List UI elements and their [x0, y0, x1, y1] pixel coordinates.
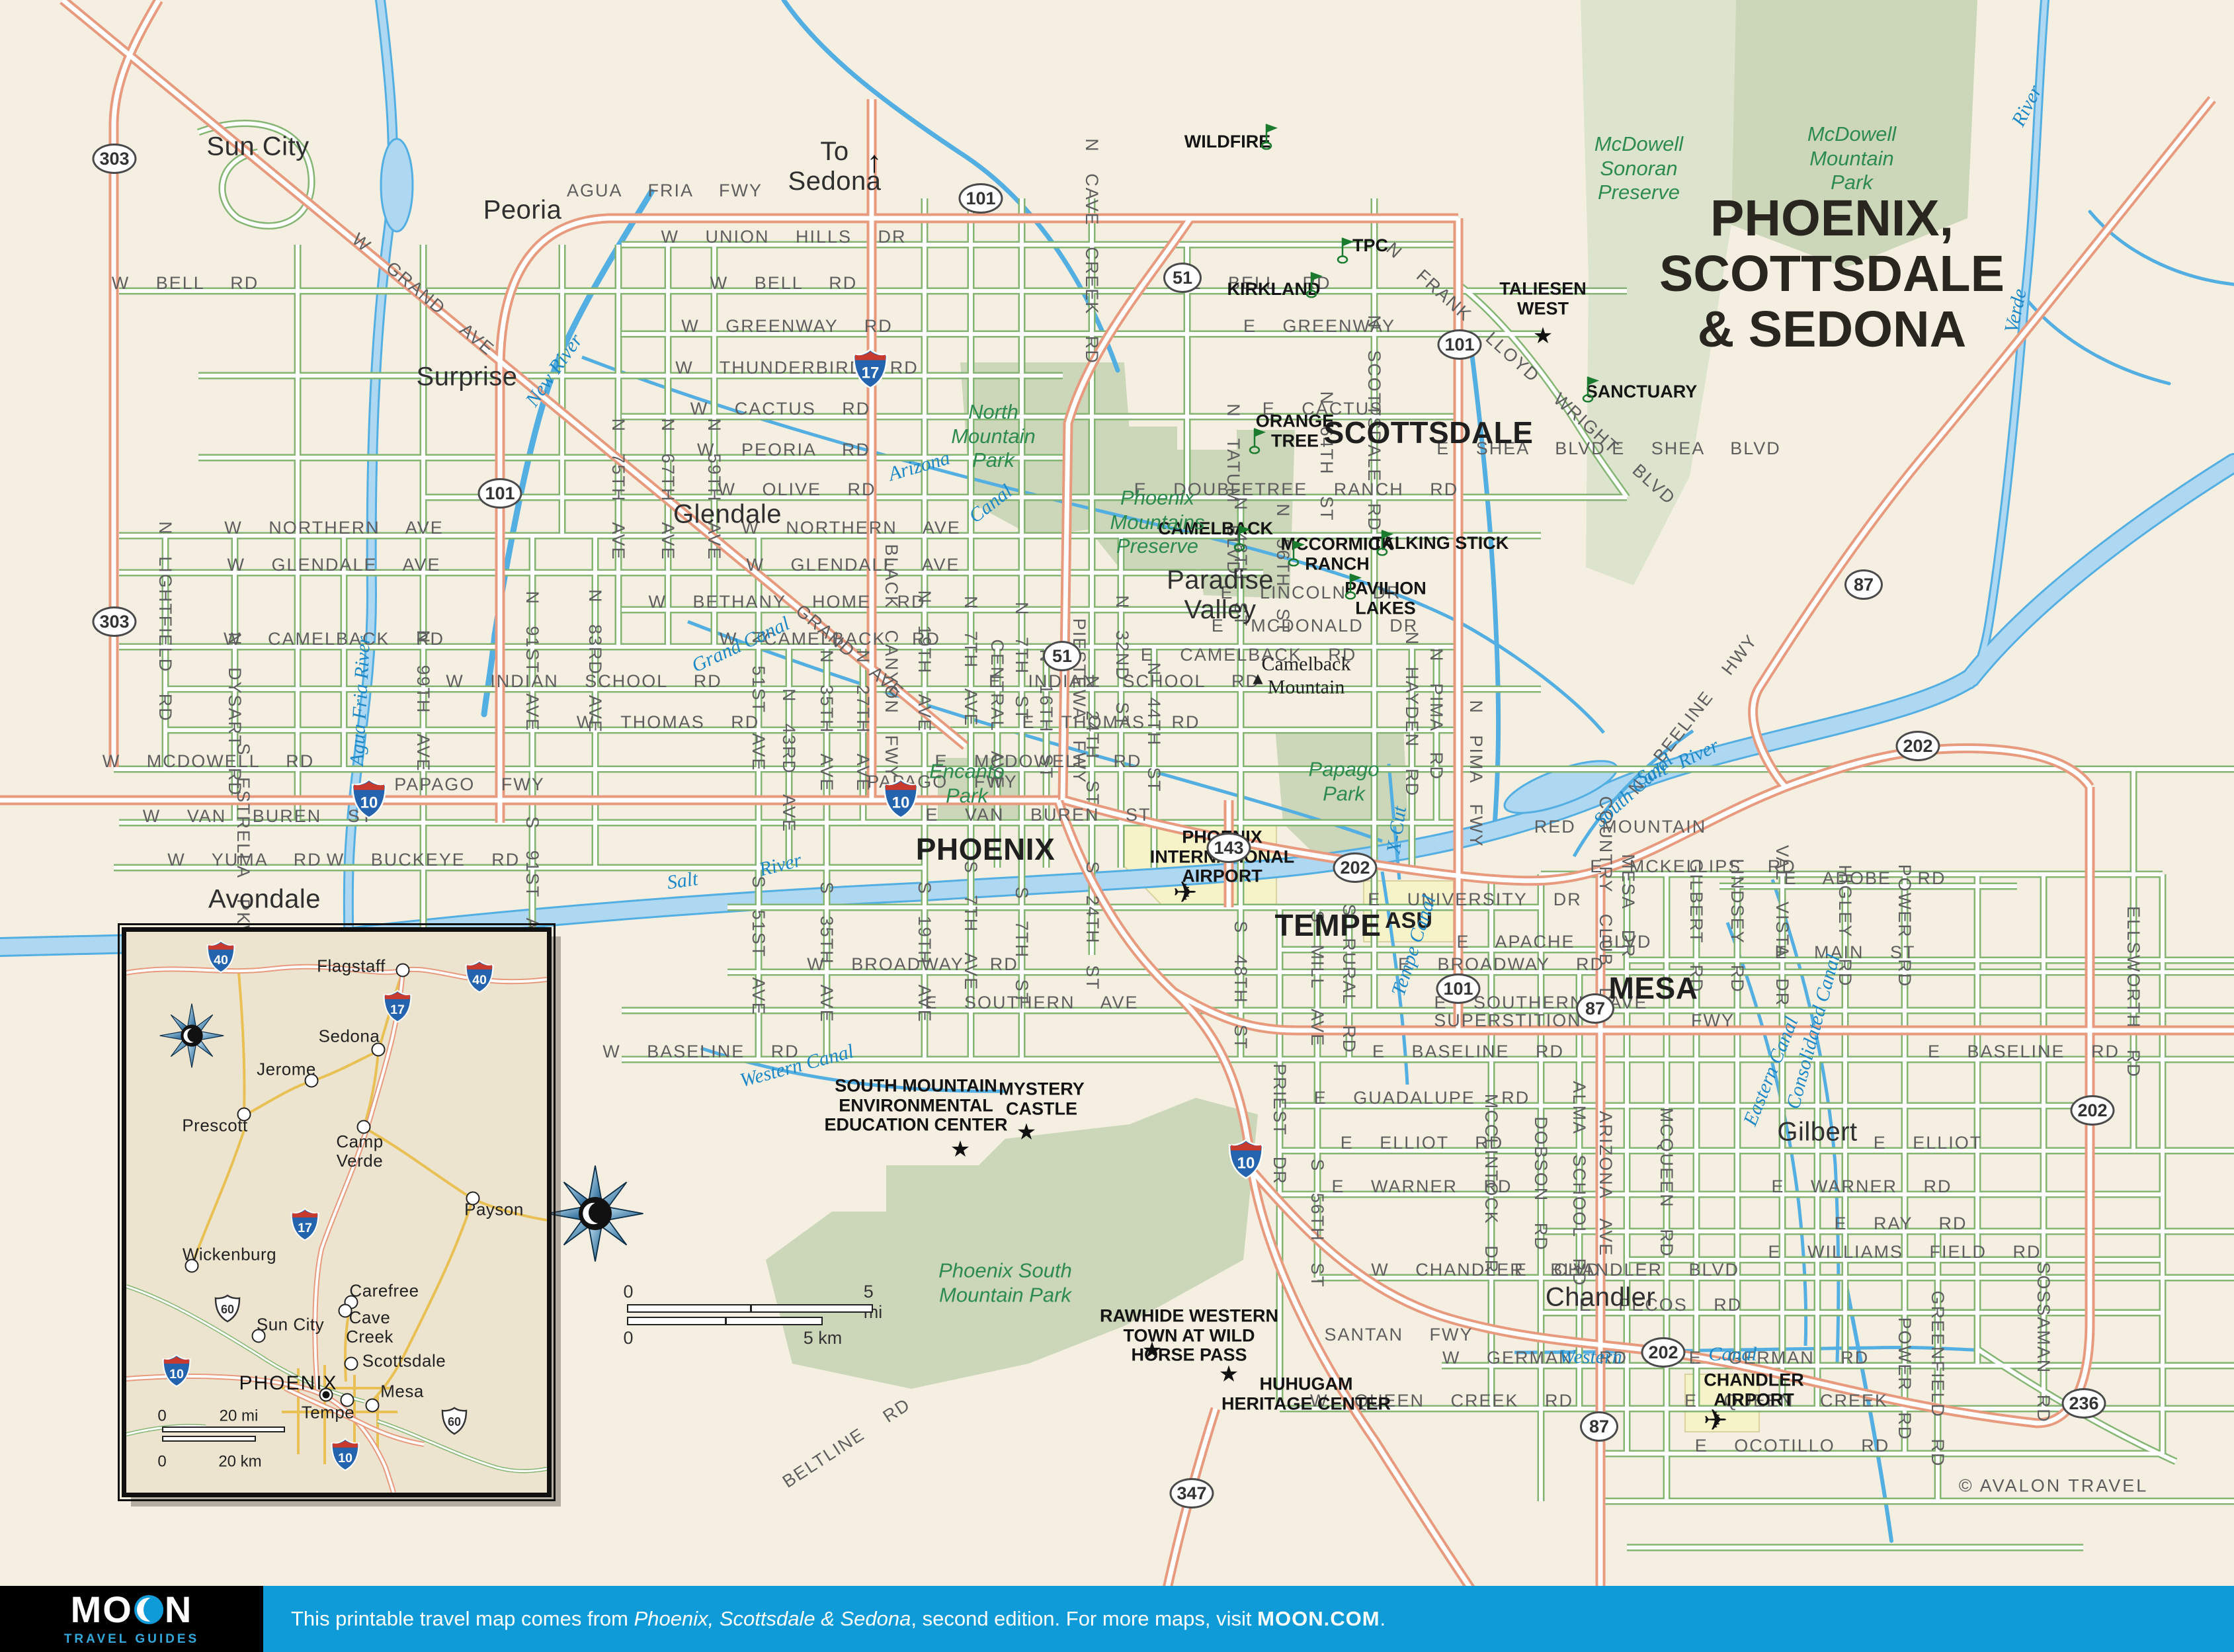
scale-mi-zero: 0: [623, 1282, 633, 1302]
copyright-notice: © AVALON TRAVEL: [1959, 1476, 2148, 1497]
footer-banner: MON TRAVEL GUIDES This printable travel …: [0, 1586, 2234, 1652]
route-87-shield: 87: [1576, 993, 1614, 1024]
route-202-shield: 202: [1895, 731, 1940, 761]
svg-text:10: 10: [892, 794, 910, 812]
star-icon: ★: [1142, 1337, 1162, 1364]
airplane-icon: ✈: [1704, 1404, 1728, 1438]
arrow-up-icon: ↑: [867, 144, 882, 179]
scale-km-zero: 0: [623, 1328, 633, 1348]
route-202-shield: 202: [1333, 852, 1377, 883]
inset-city-dot: [339, 1304, 352, 1318]
inset-region-map: FlagstaffSedonaJeromePrescottCamp VerdeP…: [122, 927, 552, 1497]
airplane-icon: ✈: [1173, 876, 1198, 910]
map-title-line2: SCOTTSDALE: [1659, 247, 2005, 302]
footer-text: This printable travel map comes from Pho…: [291, 1607, 1386, 1631]
inset-city-dot: [185, 1259, 199, 1273]
moon-crescent-icon: [134, 1595, 163, 1624]
golf-flag-icon: [1233, 524, 1253, 555]
footer-text-title: Phoenix, Scottsdale & Sedona: [634, 1607, 911, 1630]
inset-city-dot: [252, 1329, 266, 1343]
footer-text-end: .: [1380, 1607, 1386, 1630]
scale-bar: 0 5 mi 0 5 km: [627, 1282, 878, 1350]
route-51-shield: 51: [1043, 641, 1081, 671]
golf-flag-icon: [1376, 528, 1396, 559]
star-icon: ★: [1016, 1119, 1036, 1145]
svg-text:60: 60: [448, 1415, 461, 1428]
interstate-10-shield: 10: [161, 1354, 192, 1391]
svg-text:17: 17: [390, 1003, 405, 1017]
route-202-shield: 202: [1641, 1337, 1685, 1368]
svg-text:40: 40: [214, 953, 228, 968]
golf-flag-icon: [1305, 270, 1325, 302]
route-303-shield: 303: [92, 606, 136, 637]
route-101-shield: 101: [1436, 973, 1480, 1004]
peak-icon: ▲: [1249, 669, 1266, 689]
inset-city-dot: [466, 1192, 480, 1206]
inset-city-dot: [366, 1399, 380, 1413]
map-page: AGUA FRIA FWYW UNION HILLS DRW BELL RDW …: [0, 0, 2234, 1652]
interstate-40-shield: 40: [206, 940, 236, 977]
golf-flag-icon: [1288, 539, 1307, 570]
route-303-shield: 303: [92, 144, 136, 174]
route-101-shield: 101: [477, 478, 522, 509]
moon-logo-post: N: [165, 1591, 192, 1628]
interstate-10-shield: 10: [1227, 1139, 1264, 1183]
footer-text-pre: This printable travel map comes from: [291, 1607, 634, 1630]
footer-text-mid: , second edition. For more maps, visit: [911, 1607, 1257, 1630]
map-title-line3: & SEDONA: [1659, 302, 2005, 358]
inset-city-dot: [345, 1357, 358, 1371]
moon-logo-subtitle: TRAVEL GUIDES: [64, 1632, 199, 1647]
route-101-shield: 101: [958, 183, 1003, 214]
star-icon: ★: [1219, 1361, 1239, 1387]
moon-logo[interactable]: MON TRAVEL GUIDES: [0, 1586, 263, 1652]
route-87-shield: 87: [1844, 569, 1883, 600]
route-202-shield: 202: [2070, 1095, 2114, 1126]
golf-flag-icon: [1261, 122, 1280, 153]
interstate-17-shield: 17: [852, 349, 889, 393]
inset-city-dot: [237, 1108, 251, 1122]
us-route-60-shield: 60: [441, 1406, 468, 1438]
svg-text:10: 10: [360, 794, 378, 812]
route-347-shield: 347: [1169, 1478, 1214, 1508]
scale-bar-miles: [627, 1304, 873, 1313]
scale-mi-label: 5 mi: [864, 1282, 882, 1323]
route-51-shield: 51: [1163, 263, 1202, 293]
inset-city-dot: [357, 1120, 371, 1134]
golf-flag-icon: [1345, 572, 1364, 603]
interstate-17-shield: 17: [290, 1208, 320, 1245]
inset-city-dot: [396, 964, 410, 977]
svg-text:17: 17: [862, 364, 880, 382]
inset-scale-bar-km: [162, 1436, 256, 1442]
footer-moon-com-link[interactable]: MOON.COM: [1257, 1607, 1380, 1630]
us-route-60-shield: 60: [214, 1294, 241, 1326]
inset-city-dot: [341, 1393, 354, 1407]
interstate-40-shield: 40: [464, 960, 495, 997]
interstate-17-shield: 17: [382, 989, 413, 1026]
star-icon: ★: [1533, 323, 1553, 349]
route-143-shield: 143: [1206, 833, 1251, 863]
moon-logo-word: MON: [71, 1591, 193, 1628]
interstate-10-shield: 10: [351, 778, 388, 823]
scale-bar-km: [627, 1317, 823, 1325]
svg-text:40: 40: [472, 973, 487, 987]
route-236-shield: 236: [2061, 1388, 2106, 1419]
star-icon: ★: [950, 1136, 970, 1163]
route-101-shield: 101: [1437, 329, 1481, 360]
golf-flag-icon: [1582, 375, 1602, 406]
inset-city-dot-capital: [319, 1388, 333, 1402]
scale-km-label: 5 km: [804, 1328, 843, 1348]
inset-city-dot: [305, 1074, 319, 1088]
svg-text:10: 10: [169, 1367, 184, 1382]
svg-text:60: 60: [221, 1303, 234, 1316]
svg-text:17: 17: [298, 1221, 312, 1235]
golf-flag-icon: [1337, 236, 1356, 267]
interstate-10-shield: 10: [330, 1438, 360, 1475]
interstate-10-shield: 10: [882, 778, 919, 823]
inset-scale-bar-miles: [162, 1426, 285, 1432]
golf-flag-icon: [1249, 427, 1268, 458]
svg-text:10: 10: [1237, 1155, 1255, 1173]
map-title-line1: PHOENIX,: [1659, 191, 2005, 247]
inset-city-dot: [372, 1043, 386, 1057]
moon-logo-pre: MO: [71, 1591, 133, 1628]
svg-text:10: 10: [338, 1451, 352, 1466]
route-87-shield: 87: [1580, 1411, 1618, 1442]
map-title: PHOENIX, SCOTTSDALE & SEDONA: [1659, 191, 2005, 358]
